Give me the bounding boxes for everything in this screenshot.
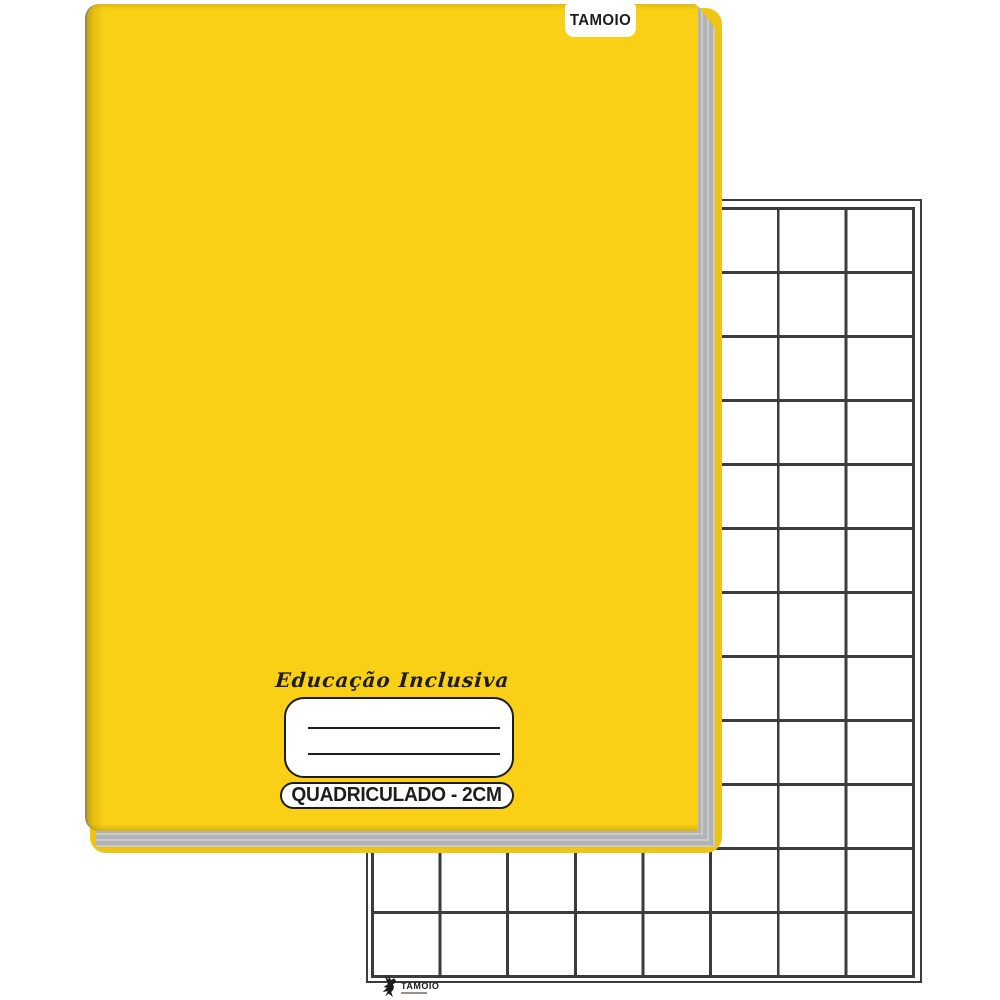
name-label-line (308, 753, 500, 755)
name-label-line (308, 727, 500, 729)
footer-brand-text: TAMOIO (401, 981, 439, 991)
notebook-product-image: TAMOIO Educação Inclusiva QUADRICULADO -… (0, 0, 1000, 1000)
page-edges-right (698, 6, 715, 847)
name-label-box (284, 697, 514, 778)
page-edges-bottom (96, 831, 714, 847)
footer-brand-logo: TAMOIO (381, 974, 439, 998)
footer-tagline-bar (401, 992, 427, 994)
brand-tab: TAMOIO (565, 4, 636, 37)
brand-tab-label: TAMOIO (570, 12, 631, 30)
grid-type-label: QUADRICULADO - 2CM (292, 784, 502, 807)
collection-script-text: Educação Inclusiva (86, 668, 699, 692)
grid-type-pill: QUADRICULADO - 2CM (280, 782, 514, 809)
notebook-front-cover: TAMOIO Educação Inclusiva QUADRICULADO -… (85, 4, 698, 831)
footer-brand-block: TAMOIO (401, 974, 439, 994)
tamoio-mascot-icon (381, 974, 398, 998)
